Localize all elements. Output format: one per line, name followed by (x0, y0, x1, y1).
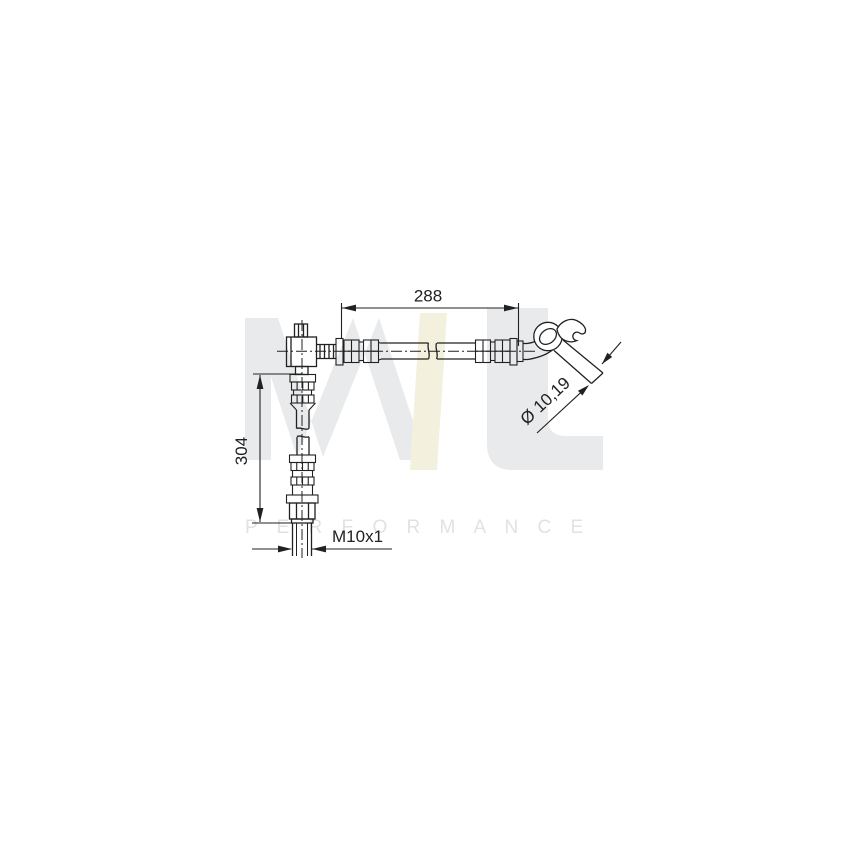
retaining-clip (557, 319, 586, 341)
product-image-canvas: P E R F O R M A N C E (0, 0, 850, 850)
dimension-label-304: 304 (232, 437, 251, 465)
elbow-tab (295, 324, 308, 337)
end-tube-edge (563, 340, 603, 373)
end-tube-opening (592, 373, 604, 384)
brake-hose-technical-drawing: P E R F O R M A N C E (0, 0, 850, 850)
dimension-label-thread: M10x1 (332, 527, 383, 546)
dimension-label-288: 288 (414, 287, 442, 306)
arrowhead-left (312, 546, 326, 553)
arrowhead-left (342, 305, 356, 312)
watermark-slash (410, 313, 447, 470)
arrowhead-right (278, 546, 292, 553)
